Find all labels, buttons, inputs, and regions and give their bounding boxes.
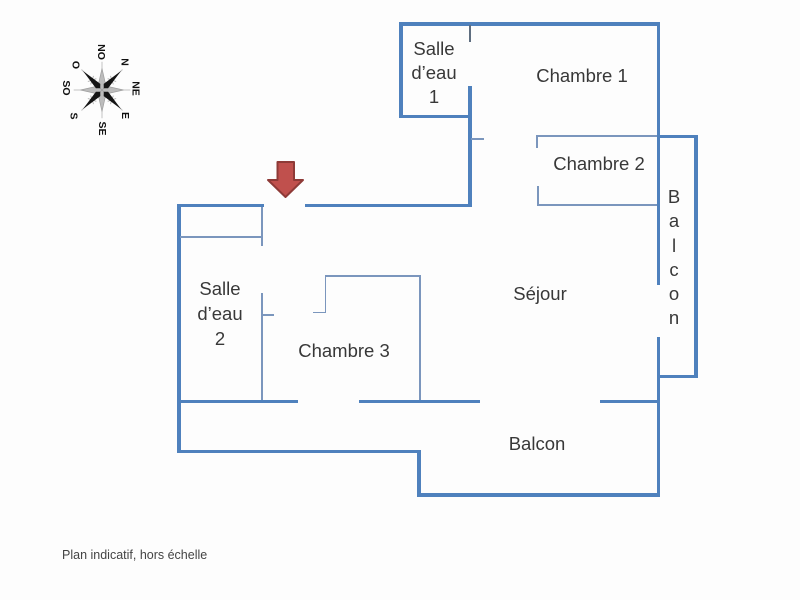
svg-text:NE: NE xyxy=(130,81,142,96)
svg-text:S: S xyxy=(68,112,80,119)
svg-text:SO: SO xyxy=(60,80,72,95)
svg-text:NO: NO xyxy=(95,44,107,60)
svg-text:E: E xyxy=(119,112,131,119)
svg-text:SE: SE xyxy=(96,121,108,135)
svg-text:N: N xyxy=(119,58,131,66)
svg-text:O: O xyxy=(70,61,82,69)
